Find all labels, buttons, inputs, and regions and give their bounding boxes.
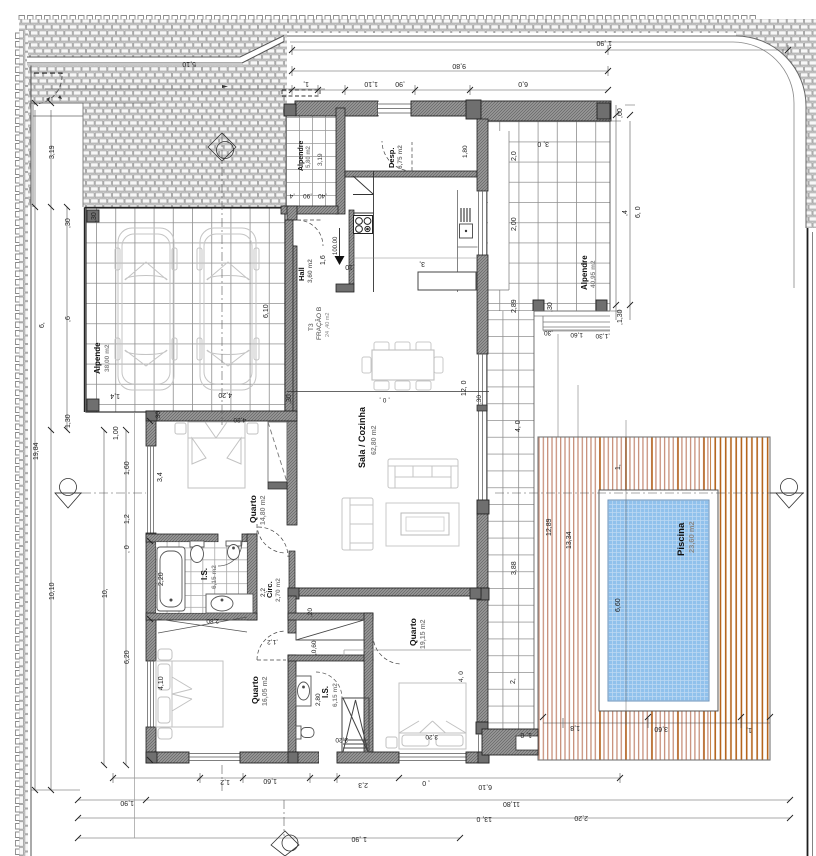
svg-text:1,30: 1,30: [65, 414, 72, 428]
svg-text:2,89: 2,89: [511, 299, 518, 313]
svg-text:11,80: 11,80: [503, 800, 520, 807]
svg-text:1,60: 1,60: [263, 777, 277, 784]
svg-text:T3: T3: [308, 323, 315, 331]
svg-text:1,: 1,: [303, 80, 309, 87]
svg-text:4, 0: 4, 0: [515, 420, 522, 432]
svg-text:, 0: , 0: [422, 779, 430, 786]
svg-text:,0,60: ,0,60: [311, 640, 318, 655]
svg-text:3,19: 3,19: [49, 145, 56, 159]
svg-text:6,75 m2: 6,75 m2: [397, 145, 404, 169]
svg-text:13,34: 13,34: [566, 531, 573, 549]
svg-text:9,80: 9,80: [452, 62, 466, 69]
svg-text:3,60 m2: 3,60 m2: [307, 259, 314, 283]
svg-text:4,20: 4,20: [218, 391, 232, 398]
svg-text:1,60: 1,60: [124, 461, 131, 475]
svg-text:1 ,90: 1 ,90: [351, 835, 367, 842]
svg-text:Alpendre: Alpendre: [298, 141, 305, 171]
svg-text:,1,2: ,1,2: [267, 638, 278, 645]
svg-text:14,80 m2: 14,80 m2: [260, 495, 267, 525]
svg-text:10,10: 10,10: [49, 582, 56, 600]
svg-text:1,60: 1,60: [570, 331, 583, 338]
svg-text:4, 0: 4, 0: [458, 671, 465, 682]
svg-text:2,20: 2,20: [335, 736, 348, 743]
svg-text:2,20: 2,20: [574, 814, 588, 821]
svg-text:Piscina: Piscina: [676, 522, 687, 556]
svg-text:,30: ,30: [155, 411, 162, 420]
svg-text:4,20: 4,20: [233, 416, 246, 423]
svg-text:I.S.: I.S.: [321, 686, 330, 698]
svg-text:3,88: 3,88: [511, 561, 518, 575]
svg-text:6,0: 6,0: [518, 80, 528, 87]
svg-text:1,4: 1,4: [110, 392, 120, 399]
svg-text:19,15 m2: 19,15 m2: [420, 619, 427, 649]
svg-text:40,95 m2: 40,95 m2: [590, 260, 597, 288]
svg-text:3,60: 3,60: [654, 725, 668, 732]
svg-text:6,15 m2: 6,15 m2: [332, 683, 339, 707]
svg-text:,90: ,90: [303, 192, 312, 199]
svg-text:1,8: 1,8: [570, 724, 580, 731]
svg-text:, 0: , 0: [124, 545, 131, 553]
svg-text:,20: ,20: [307, 608, 314, 617]
svg-text:23,60 m2: 23,60 m2: [687, 521, 696, 553]
svg-text:1, 0: 1, 0: [520, 731, 532, 738]
svg-text:2,70 m2: 2,70 m2: [275, 578, 282, 602]
svg-text:,1,30: ,1,30: [595, 332, 610, 339]
svg-text:4,10: 4,10: [158, 676, 165, 690]
svg-text:,90: ,90: [395, 80, 405, 87]
svg-text:,1,30: ,1,30: [617, 309, 624, 325]
svg-text:3,: 3,: [419, 260, 425, 267]
svg-text:2,20: 2,20: [158, 572, 165, 586]
svg-text:2,3: 2,3: [358, 781, 368, 788]
svg-text:1,6: 1,6: [320, 255, 327, 265]
svg-text:,30: ,30: [547, 302, 554, 312]
svg-text:10,: 10,: [102, 588, 109, 598]
svg-text:3, 0: 3, 0: [537, 140, 549, 147]
svg-text:Hall: Hall: [297, 267, 306, 281]
svg-text:3,20: 3,20: [425, 733, 438, 740]
svg-text:Quarto: Quarto: [408, 618, 418, 646]
svg-text:2,80: 2,80: [206, 617, 219, 624]
svg-text:16,05 m2: 16,05 m2: [262, 676, 269, 706]
svg-text:2,0: 2,0: [511, 151, 518, 161]
svg-text:,30: ,30: [544, 329, 553, 336]
svg-text:Alpendre: Alpendre: [580, 255, 589, 290]
svg-text:1,80: 1,80: [462, 145, 469, 158]
svg-text:13, 0: 13, 0: [476, 815, 492, 822]
svg-text:1,00: 1,00: [113, 426, 120, 440]
svg-text:24 ,40 m2: 24 ,40 m2: [325, 313, 331, 337]
svg-text:FRAÇÃO B: FRAÇÃO B: [314, 307, 323, 340]
svg-text:6,10: 6,10: [263, 304, 270, 318]
svg-text:Quarto: Quarto: [250, 676, 260, 704]
svg-text:5,10: 5,10: [182, 60, 196, 67]
svg-text:Circ.: Circ.: [265, 581, 274, 598]
svg-text:1,2: 1,2: [220, 778, 230, 785]
svg-text:,4: ,4: [289, 192, 295, 199]
svg-text:1,10: 1,10: [364, 80, 378, 87]
svg-text:3,4: 3,4: [157, 472, 164, 482]
svg-text:6,15 m2: 6,15 m2: [211, 565, 218, 589]
svg-text:Sala / Cozinha: Sala / Cozinha: [357, 406, 367, 468]
svg-text:,30: ,30: [65, 218, 72, 228]
svg-text:5,80 m2: 5,80 m2: [306, 145, 312, 168]
svg-text:1,: 1,: [746, 726, 752, 733]
svg-text:1 ,90: 1 ,90: [596, 39, 612, 46]
svg-text:Quarto: Quarto: [248, 495, 258, 523]
svg-text:100.00: 100.00: [333, 236, 339, 255]
svg-text:6,10: 6,10: [478, 783, 492, 790]
svg-text:3,19: 3,19: [317, 153, 324, 166]
svg-text:6,60: 6,60: [615, 598, 622, 612]
svg-text:I.S.: I.S.: [200, 568, 209, 580]
svg-text:38,00 m2: 38,00 m2: [104, 344, 111, 372]
svg-text:6, 0: 6, 0: [635, 206, 642, 218]
svg-text:1,2: 1,2: [124, 514, 131, 524]
svg-text:,30: ,30: [476, 395, 483, 404]
svg-text:,30: ,30: [286, 394, 293, 404]
svg-text:Desp.: Desp.: [387, 148, 396, 168]
svg-text:1,: 1,: [615, 464, 622, 470]
svg-text:2,: 2,: [510, 678, 517, 684]
svg-text:6,20: 6,20: [124, 650, 131, 664]
svg-text:, 0 ,: , 0 ,: [379, 396, 390, 403]
svg-text:,6: ,6: [65, 316, 72, 322]
svg-text:,40: ,40: [318, 192, 327, 199]
svg-text:1,90: 1,90: [120, 799, 134, 806]
svg-text:,4: ,4: [622, 210, 629, 216]
svg-text:12,89: 12,89: [546, 518, 553, 536]
svg-text:12, 0: 12, 0: [461, 380, 468, 396]
svg-text:,10: ,10: [345, 263, 355, 270]
svg-text:Alpende: Alpende: [93, 342, 102, 374]
svg-text:19,84: 19,84: [33, 442, 40, 460]
svg-text:2,00: 2,00: [511, 217, 518, 231]
svg-text:6,: 6,: [39, 322, 46, 328]
svg-text:,30: ,30: [91, 212, 98, 222]
svg-text:62,80 m2: 62,80 m2: [371, 425, 378, 455]
